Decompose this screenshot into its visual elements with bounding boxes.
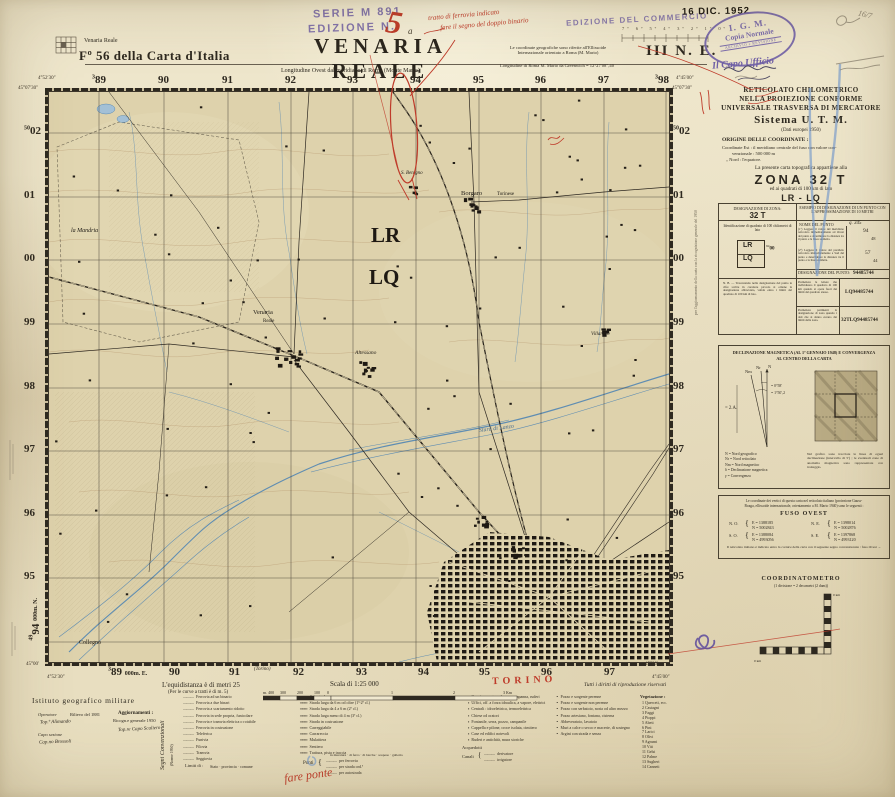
brace: { — [745, 531, 749, 540]
segni-convenzionali-label: Segni Convenzionali — [160, 694, 166, 770]
coordinatometro-subtitle: (1 divisione = 2 decametri (2 dam)) — [712, 584, 890, 588]
farmstead — [429, 142, 431, 144]
label-venaria-1: Venaria — [253, 309, 273, 316]
grid-number: 95 — [479, 666, 490, 678]
farmstead — [242, 301, 244, 303]
grid-number: 91 — [229, 666, 240, 678]
vegetazione-list: 1 Querceti, ecc.2 Castagni3 Faggi4 Piopp… — [642, 701, 667, 770]
torino-red-annotation: TORINO — [492, 674, 557, 687]
acquedotti-label: Acquedotti — [462, 745, 482, 750]
corner-bl-lon: 4°52′30″ — [47, 675, 65, 680]
decl-legend-5: γ = Convergenza — [725, 474, 767, 479]
farmstead — [78, 261, 80, 263]
segni-sub-label: (Norme 1950) — [170, 700, 174, 766]
label-villaretto: Villaretto — [591, 332, 610, 337]
grid-number: 96 — [24, 507, 35, 519]
fuso-ne-label: N. E. — [811, 521, 820, 526]
farmstead — [202, 302, 204, 304]
scale-tick-label: 200 — [297, 690, 303, 695]
declination-diagram: Nm Nr N = 2.A. = 0°58′ = 1°50′,2 — [723, 363, 885, 449]
aggiornamenti-label: Aggiornamenti : — [118, 711, 153, 716]
farmstead — [154, 234, 156, 236]
operatore-label: Operatore — [38, 712, 57, 717]
farmstead — [166, 494, 168, 496]
farmstead — [394, 321, 396, 323]
building-block — [367, 367, 370, 369]
grid-number: 93 — [356, 666, 367, 678]
grid-number: 5002 — [24, 125, 41, 137]
purple-scribble — [696, 635, 715, 648]
scale-bar-segment — [280, 696, 297, 700]
building-block — [275, 357, 279, 360]
label-venaria-2: Reale — [263, 319, 275, 324]
coordinatometro-title: COORDINATOMETRO — [712, 576, 890, 582]
operatore-name: Top.º Alimando — [40, 719, 71, 725]
building-block — [512, 546, 515, 549]
legend-item: Strada larga meno di 4 m (3ª cl.) — [300, 713, 370, 719]
label-borgaro-2: Torinese — [497, 192, 515, 197]
farmstead — [230, 280, 232, 282]
building-block — [295, 363, 300, 366]
legend-item: Ruderi e antichità, mura storiche — [468, 737, 545, 743]
grid-number: 398 — [655, 74, 669, 86]
designation-table: DESIGNAZIONE DI ZONA: 32 T ESEMPIO DI DE… — [718, 203, 890, 335]
scale-tick-label: 1 — [391, 690, 393, 695]
reticolato-line3: UNIVERSALE TRASVERSA DI MERCATORE — [712, 104, 890, 113]
scale-tick-label: 3 Km — [503, 690, 513, 695]
quadrati-note: ed ai quadrati di 100 km di lato — [712, 187, 890, 192]
farmstead — [410, 277, 412, 279]
farmstead — [542, 119, 544, 121]
fuso-so-label: S. O. — [729, 533, 738, 538]
appartiene-note: La presente carta topografica appartiene… — [712, 165, 890, 171]
instruction-1: (1º) Leggere il valore del meridiano ret… — [798, 228, 844, 242]
legend-item: Pozzo con serbatoio, noria od altro mezz… — [556, 706, 630, 712]
grid-number: 01 — [24, 189, 35, 201]
legend-item: Seggiovia — [183, 756, 256, 762]
map-drawing: LR LQ la Mandria Venaria Reale Altessano… — [49, 92, 669, 662]
scale-tick-label: 300 — [280, 690, 286, 695]
fuso-ne-n: N = 5002876 — [834, 525, 856, 530]
label-sbenigno: S. Benigno — [401, 171, 423, 176]
building-block — [513, 549, 517, 552]
farmstead — [265, 337, 267, 339]
farmstead — [83, 313, 85, 315]
label-nr: Nr — [756, 365, 761, 370]
limiti-label: Limiti di : — [185, 763, 203, 768]
building-block — [359, 361, 362, 364]
fuso-ovest-box: Le coordinate dei vertici di questa cart… — [718, 495, 890, 559]
reticolato-line1: RETICOLATO CHILOMETRICO — [712, 86, 890, 95]
farmstead — [453, 162, 455, 164]
farmstead — [167, 428, 169, 430]
scale-tick-label: 2 — [453, 690, 455, 695]
fuso-title: FUSO OVEST — [722, 511, 886, 517]
square-number: 9400 — [766, 246, 775, 252]
limiti-values: Stato · provincia · comune — [210, 764, 253, 769]
grid-number: 97 — [673, 443, 684, 455]
grid-number: 96 — [673, 507, 684, 519]
farmstead — [569, 156, 571, 158]
instruction-4: Premettere parimenti la designazione di … — [798, 309, 837, 323]
farmstead — [59, 533, 61, 535]
instruction-2: (2º) Leggere il valore del parallelo ret… — [798, 249, 844, 263]
building-block — [601, 328, 606, 330]
neatline-left — [45, 88, 48, 666]
ident-note: Identificazione di quadrato di 100 chilo… — [723, 224, 792, 232]
farmstead — [170, 194, 172, 196]
ponti-types: in muratura · di ferro · di barche · sos… — [330, 753, 403, 757]
grid-number: 98 — [24, 380, 35, 392]
grid-number: 95 — [473, 74, 484, 86]
building-block — [370, 368, 374, 371]
map-area: LR LQ la Mandria Venaria Reale Altessano… — [48, 91, 670, 663]
grid-number: 00 — [24, 252, 35, 264]
building-block — [524, 554, 528, 556]
capo-name: Cap.no Brossoli — [39, 739, 71, 745]
farmstead — [205, 486, 207, 488]
scale-bar-segment — [455, 696, 517, 700]
farmstead — [298, 259, 300, 261]
nb-note: N. B. — Trascurando nella designazione d… — [723, 282, 792, 296]
farmstead — [565, 559, 567, 561]
farmstead — [620, 224, 622, 226]
corner-tr-lon: 4°45′00″ — [676, 76, 694, 81]
building-block — [289, 361, 292, 364]
farmstead — [468, 148, 470, 150]
declination-box: DECLINAZIONE MAGNETICA (AL 1º GENNAIO 19… — [718, 345, 890, 489]
desig-value-2: LQ94485744 — [845, 289, 873, 295]
fuso-intro-2: Boaga, ellissoide internazionale, orient… — [722, 504, 886, 508]
scale-tick-label: 0 — [327, 690, 329, 695]
building-block — [464, 198, 467, 202]
label-collegno: Collegno — [79, 640, 101, 646]
farmstead — [519, 247, 521, 249]
grid-number: 389 — [92, 74, 106, 86]
greenwich-note: Longitudine di Roma M. Mario da Greenwic… — [500, 63, 614, 68]
right-margin-production-note: per l'aggiornamento della carta con la r… — [694, 105, 698, 315]
legend-item: 14 Canneti — [642, 765, 667, 770]
building-block — [477, 210, 481, 213]
building-block — [298, 357, 302, 359]
farmstead — [437, 487, 439, 489]
farmstead — [257, 259, 259, 261]
farmstead — [581, 345, 583, 347]
building-block — [299, 350, 302, 353]
grid-number: 94 — [418, 666, 429, 678]
grid-number: 91 — [222, 74, 233, 86]
fuso-se-n: N = 4993120 — [834, 537, 856, 542]
grid-number: 92 — [293, 666, 304, 678]
building-block — [368, 375, 372, 378]
farmstead — [581, 179, 583, 181]
example-num-4: 44 — [873, 258, 878, 263]
farmstead — [639, 165, 641, 167]
scale-label: Scala di 1:25 000 — [330, 680, 379, 688]
farmstead — [495, 256, 497, 258]
brace: { — [745, 519, 749, 528]
title-annotation: a — [408, 26, 413, 36]
label-mandria: la Mandria — [71, 228, 98, 234]
canali-items: derivatoreirrigatore — [484, 751, 513, 763]
reticolato-line2: NELLA PROIEZIONE CONFORME — [712, 95, 890, 104]
desig-header: DESIGNAZIONE DEL PUNTO: — [798, 271, 850, 275]
declination-value-2: = 1°50′,2 — [771, 391, 785, 396]
building-block — [409, 186, 413, 189]
sheet-reference: Fº 56 della Carta d'Italia — [79, 48, 230, 64]
index-highlight-cell — [61, 42, 66, 47]
square-lr-cell: LR — [743, 242, 752, 249]
equidistance-note: L'equidistanza è di metri 25 — [162, 681, 240, 689]
red-note-bottom: fare ponte — [283, 765, 333, 787]
scale-bar-segment — [297, 696, 314, 700]
brace: { — [827, 519, 831, 528]
farmstead — [499, 557, 501, 559]
desig-value-1: 94485744 — [853, 270, 874, 276]
direction-label-torino: (Torino) — [254, 667, 271, 672]
grid-number: 97 — [24, 443, 35, 455]
building-block — [415, 187, 418, 189]
farmstead — [55, 440, 57, 442]
square-lq-cell: LQ — [743, 255, 753, 262]
farmstead — [606, 236, 608, 238]
dati-europei: (Dati europei 1950) — [712, 128, 890, 133]
farmstead — [217, 227, 219, 229]
label-nm: Nm — [745, 369, 752, 374]
corner-tr-lat: 45°07′30″ — [672, 86, 692, 91]
farmstead — [634, 229, 636, 231]
scale-bar: m. 4003002001000123 Km — [263, 688, 519, 704]
farmstead — [200, 106, 202, 108]
grid-number: 99 — [24, 316, 35, 328]
scale-tick-label: 100 — [314, 690, 320, 695]
building-block — [291, 355, 296, 358]
farmstead — [625, 128, 627, 130]
farmstead — [230, 383, 232, 385]
farmstead — [509, 403, 511, 405]
scale-bar-segment — [393, 696, 455, 700]
farmstead — [117, 190, 119, 192]
brace: { — [827, 531, 831, 540]
building-block — [363, 362, 368, 366]
building-block — [476, 518, 479, 520]
farmstead — [609, 189, 611, 191]
farmstead — [456, 505, 458, 507]
zona-value: 32 T — [721, 211, 794, 220]
pencil-note: 16/7 — [857, 8, 873, 20]
origine-line2: venzionale : 500 000 m — [732, 151, 775, 156]
square-label-lq: LQ — [369, 265, 399, 289]
grid-number: 97 — [604, 666, 615, 678]
grid-number: 94 — [410, 74, 421, 86]
canali-label: Canali — [462, 754, 474, 759]
label-altessano: Altessano — [354, 350, 377, 356]
fuso-outro: Il reticolato italiano è indicato entro … — [725, 545, 883, 549]
coordinate-note: Le coordinate geografiche sono riferite … — [502, 45, 614, 56]
farmstead — [489, 448, 491, 450]
grid-number: 01 — [673, 189, 684, 201]
building-block — [474, 525, 477, 527]
farmstead — [168, 253, 170, 255]
example-num-2: 48 — [871, 236, 876, 241]
farmstead — [421, 496, 423, 498]
origine-title: ORIGINE DELLE COORDINATE : — [722, 137, 809, 143]
legend-column-railways: Ferrovia ad un binarioFerrovia a due bin… — [183, 694, 256, 762]
fuso-se-label: S. E. — [811, 533, 819, 538]
farmstead — [592, 429, 594, 431]
grid-number: 97 — [598, 74, 609, 86]
coordinatometro-km-top: 0 km — [833, 593, 840, 597]
building-block — [362, 373, 365, 376]
farmstead — [634, 359, 636, 361]
desig-value-3: 32TLQ94485744 — [841, 317, 878, 323]
grid-number: 4994 000m. N. — [30, 598, 42, 641]
declination-note: Nel grafico sono tracciate le linee di e… — [807, 452, 883, 470]
scale-bar-segment — [314, 696, 331, 700]
corner-br-lat: 45°00′ — [645, 662, 658, 667]
farmstead — [429, 585, 431, 587]
farmstead — [453, 395, 455, 397]
decl-legend-4: δ = Declinazione magnetica — [725, 468, 767, 473]
farmstead — [567, 519, 569, 521]
farmstead — [324, 318, 326, 320]
building-block — [482, 524, 487, 527]
rights-note: Tutti i diritti di riproduzione riservat… — [584, 682, 666, 688]
grid-number: 93 — [347, 74, 358, 86]
zona-designation: ZONA 32 T — [712, 172, 890, 187]
building-block — [284, 358, 288, 361]
farmstead — [484, 584, 486, 586]
origine-line3: „ Nord : l'equatore. — [726, 157, 761, 162]
farmstead — [609, 268, 611, 270]
grid-number: 95 — [24, 570, 35, 582]
farmstead — [427, 408, 429, 410]
origine-line1: Coordinate Est : il meridiano centrale d… — [722, 145, 837, 150]
building-block — [415, 193, 418, 195]
farmstead — [624, 167, 626, 169]
scale-bar-segment — [263, 696, 280, 700]
building-block — [364, 369, 367, 373]
farmstead — [89, 379, 91, 381]
building-block — [486, 521, 489, 523]
grid-number: 389 000m. E. — [108, 666, 147, 678]
building-block — [276, 347, 281, 350]
scanned-map-sheet: { "header": { "index_label": "Venaria Re… — [0, 0, 895, 797]
farmstead — [249, 605, 251, 607]
farmstead — [616, 537, 618, 539]
nome-punto-value: q. 345 — [849, 221, 862, 226]
corner-bl-lat: 45°00′ — [26, 662, 39, 667]
building-block — [278, 364, 283, 368]
scale-bar-segment — [331, 696, 393, 700]
corner-tl-lon: 4°52′30″ — [38, 76, 56, 81]
building-block — [472, 209, 475, 211]
declination-value-1: = 0°58′ — [771, 384, 782, 388]
neatline-top — [45, 88, 673, 91]
building-block — [522, 547, 525, 549]
farmstead — [534, 114, 536, 116]
coordinatometro-ruler: 0 km 0 km — [752, 590, 852, 668]
rilievo-note: Rilievo del 1881 — [70, 712, 100, 717]
farmstead — [419, 125, 421, 127]
grid-number: 98 — [673, 380, 684, 392]
index-diagram — [54, 33, 80, 57]
grid-number: 95 — [673, 570, 684, 582]
example-num-1: 94 — [863, 228, 869, 234]
fuso-so-n: N = 4993056 — [752, 537, 774, 542]
farmstead — [126, 593, 128, 595]
aggiornamenti-1: Ricogn.e generale 1950 — [113, 718, 156, 723]
farmstead — [562, 306, 564, 308]
farmstead — [433, 615, 435, 617]
farmstead — [541, 566, 543, 568]
grid-number: 96 — [535, 74, 546, 86]
grid-number: 90 — [158, 74, 169, 86]
corner-tl-lat: 45°07′30″ — [18, 86, 38, 91]
building-block — [288, 350, 293, 352]
farmstead — [633, 375, 635, 377]
farmstead — [200, 614, 202, 616]
building-block — [482, 516, 487, 519]
degree-ruler — [620, 32, 710, 44]
farmstead — [479, 308, 481, 310]
farmstead — [107, 621, 109, 623]
building-block — [297, 365, 302, 367]
aggiornamenti-2: Top.re Capo Scaliero — [118, 726, 161, 733]
label-n: N — [768, 364, 772, 369]
squares-designation: LR - LQ — [712, 193, 890, 203]
farmstead — [446, 325, 448, 327]
canali-brace: { — [478, 751, 481, 759]
farmstead — [508, 580, 510, 582]
example-num-3: 57 — [865, 250, 871, 256]
farmstead — [285, 145, 287, 147]
farmstead — [73, 176, 75, 178]
farmstead — [397, 473, 399, 475]
fuso-intro-1: Le coordinate dei vertici di questa cart… — [722, 499, 886, 503]
ponti-label: Ponti — [303, 761, 314, 766]
farmstead — [332, 556, 334, 558]
farmstead — [568, 432, 570, 434]
farmstead — [578, 100, 580, 102]
esempio-header: ESEMPIO DI DESIGNAZIONE DI UN PUNTO CON … — [798, 206, 887, 215]
fuso-no-label: N. O. — [729, 521, 738, 526]
scale-tick-label: m. 400 — [263, 690, 274, 695]
legend-item: irrigatore — [484, 757, 513, 763]
building-block — [475, 206, 479, 210]
farmstead — [253, 441, 255, 443]
anomaly-grid — [815, 371, 877, 441]
coordinatometro-km-left: 0 km — [754, 659, 761, 663]
building-block — [468, 198, 473, 201]
index-sheet-label: Venaria Reale — [84, 38, 117, 44]
label-borgaro: Borgaro — [461, 190, 482, 197]
farmstead — [268, 412, 270, 414]
legend-column-wells: Pozzo e sorgente perennePozzo e sorgente… — [556, 694, 630, 737]
building-block — [477, 521, 480, 524]
vegetazione-label: Vegetazione : — [640, 694, 665, 699]
fuso-no-n: N = 5002843 — [752, 525, 774, 530]
farmstead — [192, 342, 194, 344]
sistema-utm: Sistema U. T. M. — [712, 114, 890, 126]
farmstead — [323, 150, 325, 152]
istituto-label: Istituto geografico militare — [32, 696, 135, 705]
capo-label: Capo sezione — [38, 732, 62, 737]
grid-number: 90 — [169, 666, 180, 678]
farmstead — [577, 159, 579, 161]
grid-number: 99 — [673, 316, 684, 328]
farmstead — [446, 380, 448, 382]
